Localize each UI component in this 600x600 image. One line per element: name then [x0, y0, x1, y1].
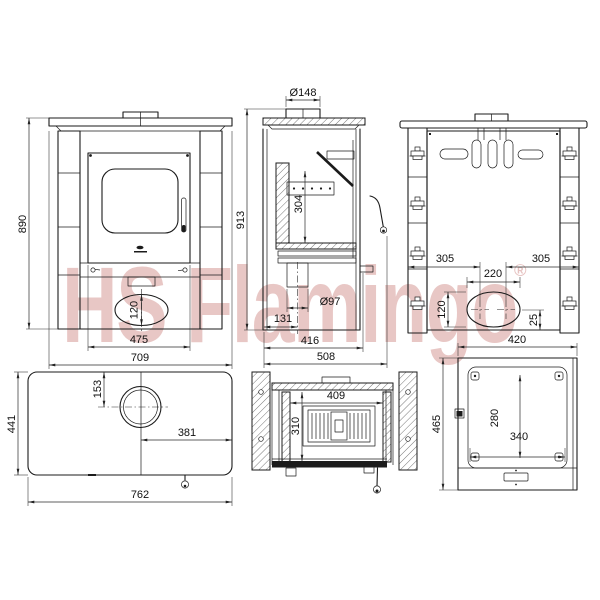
tile-clamp — [562, 297, 578, 310]
tile-clamp — [410, 147, 426, 160]
side-tile-panel — [252, 372, 270, 470]
vent-slot — [472, 140, 481, 168]
dim-total-depth: 508 — [317, 351, 335, 363]
dim-door-width: 475 — [130, 334, 148, 346]
dim-flue-from-edge: 153 — [92, 380, 104, 398]
dim-top-depth: 441 — [6, 415, 18, 433]
rear-collar-plan — [322, 377, 350, 383]
screw — [259, 390, 264, 395]
dim-rear-left-offset: 305 — [436, 253, 454, 265]
vent-slot — [440, 149, 468, 159]
drawer-handle — [504, 473, 528, 481]
door-glass — [102, 169, 178, 233]
firebox-plan-view: 409 310 — [252, 372, 417, 493]
dim-firebox-height: 304 — [293, 195, 305, 213]
firebrick — [282, 392, 290, 462]
screw — [259, 437, 264, 442]
grate-section — [276, 243, 356, 249]
dim-outlet-height: 120 — [436, 300, 448, 318]
tile-clamp — [562, 197, 578, 210]
top-plate-plan — [28, 372, 232, 475]
dim-body-depth: 416 — [301, 335, 319, 347]
top-plate-rear — [400, 121, 587, 128]
dim-outlet-diameter: Ø97 — [320, 296, 341, 308]
tile-clamp — [562, 247, 578, 260]
vent-slot — [488, 140, 497, 168]
dim-flue-diameter: Ø148 — [290, 87, 317, 99]
baffle-plate — [317, 152, 353, 186]
dim-bottom-width: 420 — [508, 334, 526, 346]
vent-slot — [504, 140, 513, 168]
door-handle-rod — [377, 468, 378, 486]
top-plate-section — [263, 118, 365, 125]
brand-logo — [137, 246, 144, 250]
firebrick — [383, 392, 391, 462]
back-wall-section — [272, 383, 393, 390]
dim-front-height: 890 — [17, 215, 29, 233]
screw — [406, 437, 411, 442]
dim-outlet-drop: 25 — [528, 314, 540, 326]
dim-flue-to-side: 381 — [178, 427, 196, 439]
base-inner-panel — [468, 367, 567, 468]
dim-ash-oval-height: 120 — [129, 301, 141, 319]
registered-mark: ® — [514, 261, 527, 280]
tile-clamp — [410, 197, 426, 210]
dim-bottom-depth: 465 — [431, 415, 443, 433]
top-view: 441 153 381 762 — [6, 372, 232, 506]
dim-firebox-depth: 310 — [290, 417, 302, 435]
dim-bottom-inner-depth: 280 — [489, 409, 501, 427]
dim-bottom-inner-width: 340 — [510, 431, 528, 443]
stove-technical-drawing: HS Flamingo ® 890 120 475 — [0, 0, 600, 600]
baffle-shelf — [327, 151, 354, 159]
vent-slot — [518, 150, 543, 159]
dim-total-height: 913 — [235, 211, 247, 229]
dim-rear-right-offset: 305 — [532, 253, 550, 265]
dim-top-width: 762 — [131, 489, 149, 501]
dim-front-width: 709 — [131, 352, 149, 364]
firebrick-wall — [276, 163, 289, 243]
hinge — [286, 468, 296, 476]
tile-clamp — [562, 147, 578, 160]
dim-outlet-width: 220 — [484, 268, 502, 280]
side-tile-panel — [399, 372, 417, 470]
dim-firebox-width: 409 — [327, 390, 345, 402]
door-lever — [370, 196, 384, 228]
dim-outlet-offset: 131 — [274, 313, 292, 325]
screw — [406, 390, 411, 395]
